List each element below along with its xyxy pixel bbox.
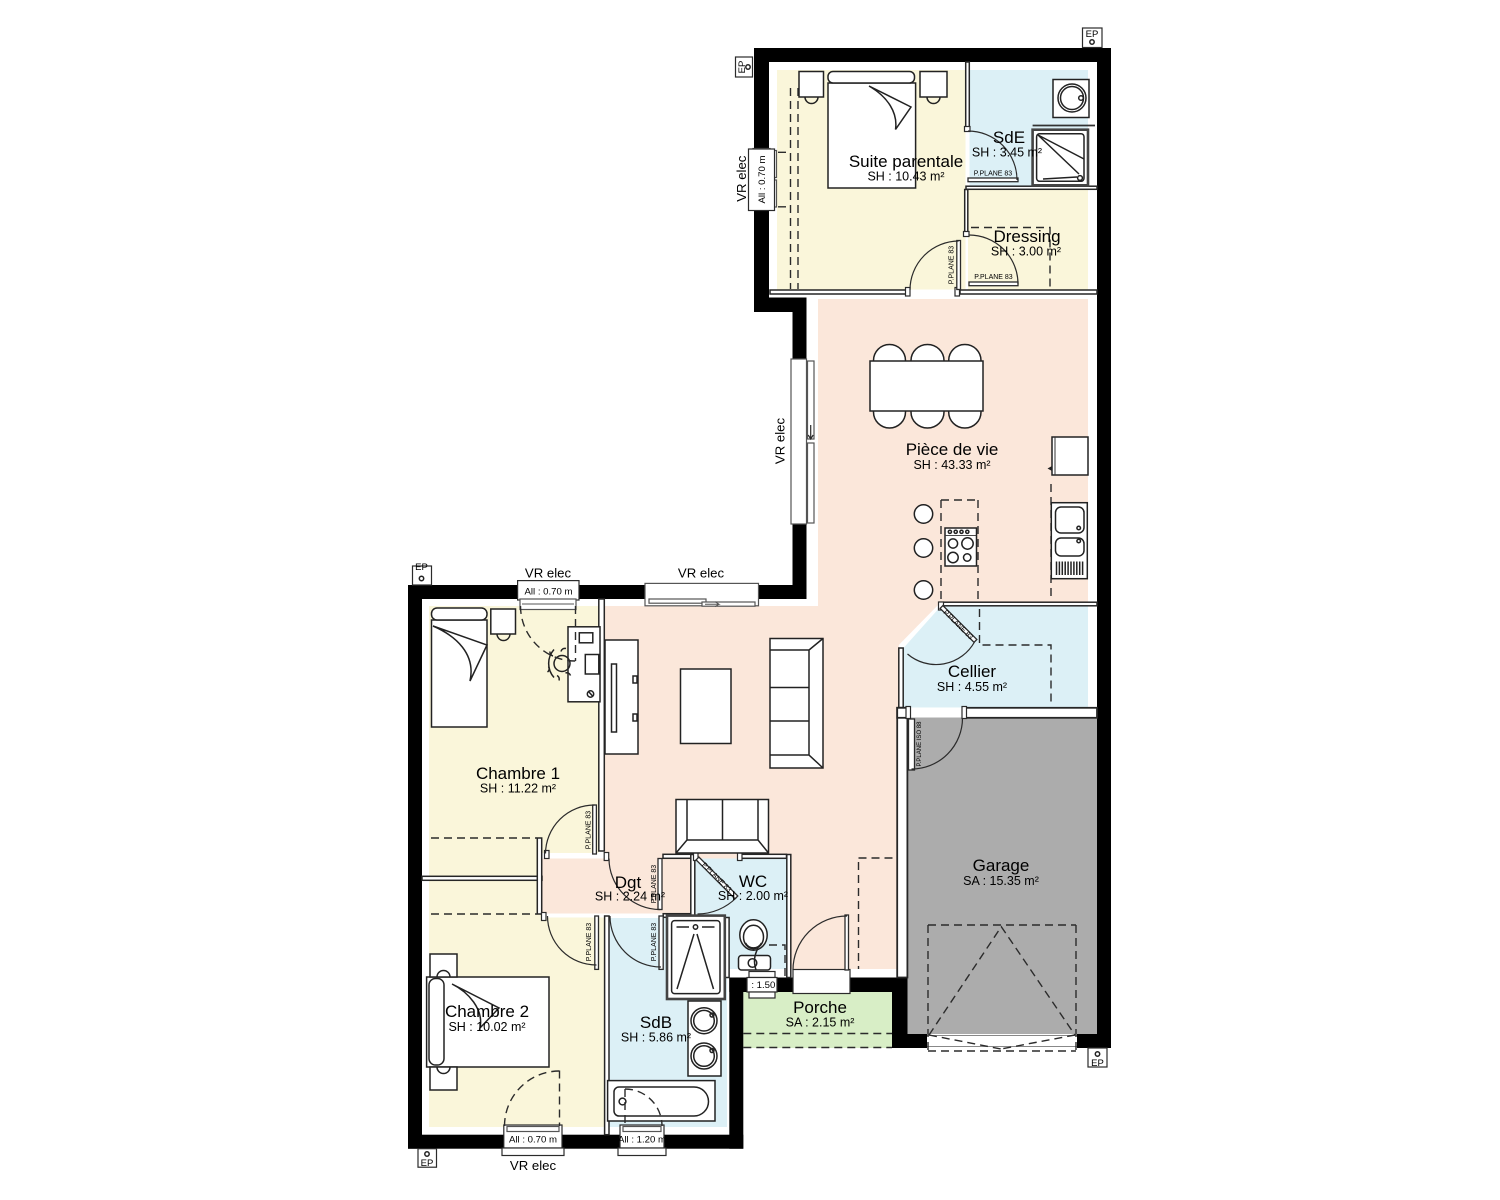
svg-text:SH : 3.00 m²: SH : 3.00 m²: [991, 245, 1061, 259]
svg-text:All : 1.20 m: All : 1.20 m: [618, 1135, 666, 1146]
svg-text:SH : 5.86 m²: SH : 5.86 m²: [621, 1031, 691, 1045]
svg-text:VR elec: VR elec: [525, 566, 572, 581]
svg-text:EP: EP: [1086, 29, 1099, 40]
svg-text:SH : 4.55 m²: SH : 4.55 m²: [937, 680, 1007, 694]
svg-text:Chambre 1: Chambre 1: [476, 764, 560, 783]
svg-text:P.PLANE 83: P.PLANE 83: [949, 246, 956, 285]
svg-text:All : 0.70 m: All : 0.70 m: [509, 1135, 557, 1146]
svg-text:VR elec: VR elec: [678, 566, 725, 581]
svg-text:SH : 11.22 m²: SH : 11.22 m²: [480, 782, 556, 796]
svg-text:SH : 2.00 m²: SH : 2.00 m²: [718, 889, 788, 903]
svg-text:P.PLANE 83: P.PLANE 83: [974, 171, 1013, 178]
svg-text:SH : 10.02 m²: SH : 10.02 m²: [448, 1020, 525, 1034]
svg-text:EP: EP: [1091, 1058, 1104, 1069]
svg-text:Cellier: Cellier: [948, 662, 997, 681]
svg-text:VR elec: VR elec: [773, 418, 788, 465]
svg-text:Chambre 2: Chambre 2: [445, 1002, 529, 1021]
svg-text:P.PLANE 83: P.PLANE 83: [974, 274, 1013, 281]
svg-text:P.PLANE ISO 88: P.PLANE ISO 88: [917, 721, 923, 767]
svg-text:Dressing: Dressing: [993, 227, 1060, 246]
svg-text:All : 0.70 m: All : 0.70 m: [525, 587, 573, 598]
svg-text:EP: EP: [415, 562, 428, 573]
svg-text:P.PLANE 83: P.PLANE 83: [586, 811, 593, 850]
svg-text:VR elec: VR elec: [734, 155, 749, 202]
svg-text:SH : 3.45 m²: SH : 3.45 m²: [972, 146, 1042, 160]
svg-text:SH : 2.24 m²: SH : 2.24 m²: [595, 890, 665, 904]
svg-text:VR elec: VR elec: [510, 1158, 557, 1173]
svg-text:SA : 15.35 m²: SA : 15.35 m²: [963, 874, 1039, 888]
svg-text:P.PLANE 83: P.PLANE 83: [586, 923, 593, 962]
svg-text:Porche: Porche: [793, 998, 847, 1017]
svg-text:SH : 43.33 m²: SH : 43.33 m²: [913, 458, 990, 472]
svg-text:Suite parentale: Suite parentale: [849, 152, 963, 171]
svg-text:Garage: Garage: [973, 856, 1030, 875]
svg-text:EP: EP: [421, 1158, 434, 1169]
svg-text:SdE: SdE: [993, 128, 1025, 147]
svg-text:SdB: SdB: [640, 1013, 672, 1032]
svg-text:Pièce de vie: Pièce de vie: [906, 440, 999, 459]
svg-text:SA : 2.15 m²: SA : 2.15 m²: [786, 1016, 855, 1030]
svg-text:All : 0.70 m: All : 0.70 m: [757, 156, 768, 204]
svg-text:SH : 10.43 m²: SH : 10.43 m²: [867, 170, 944, 184]
svg-text:P.PLANE 83: P.PLANE 83: [651, 923, 658, 962]
